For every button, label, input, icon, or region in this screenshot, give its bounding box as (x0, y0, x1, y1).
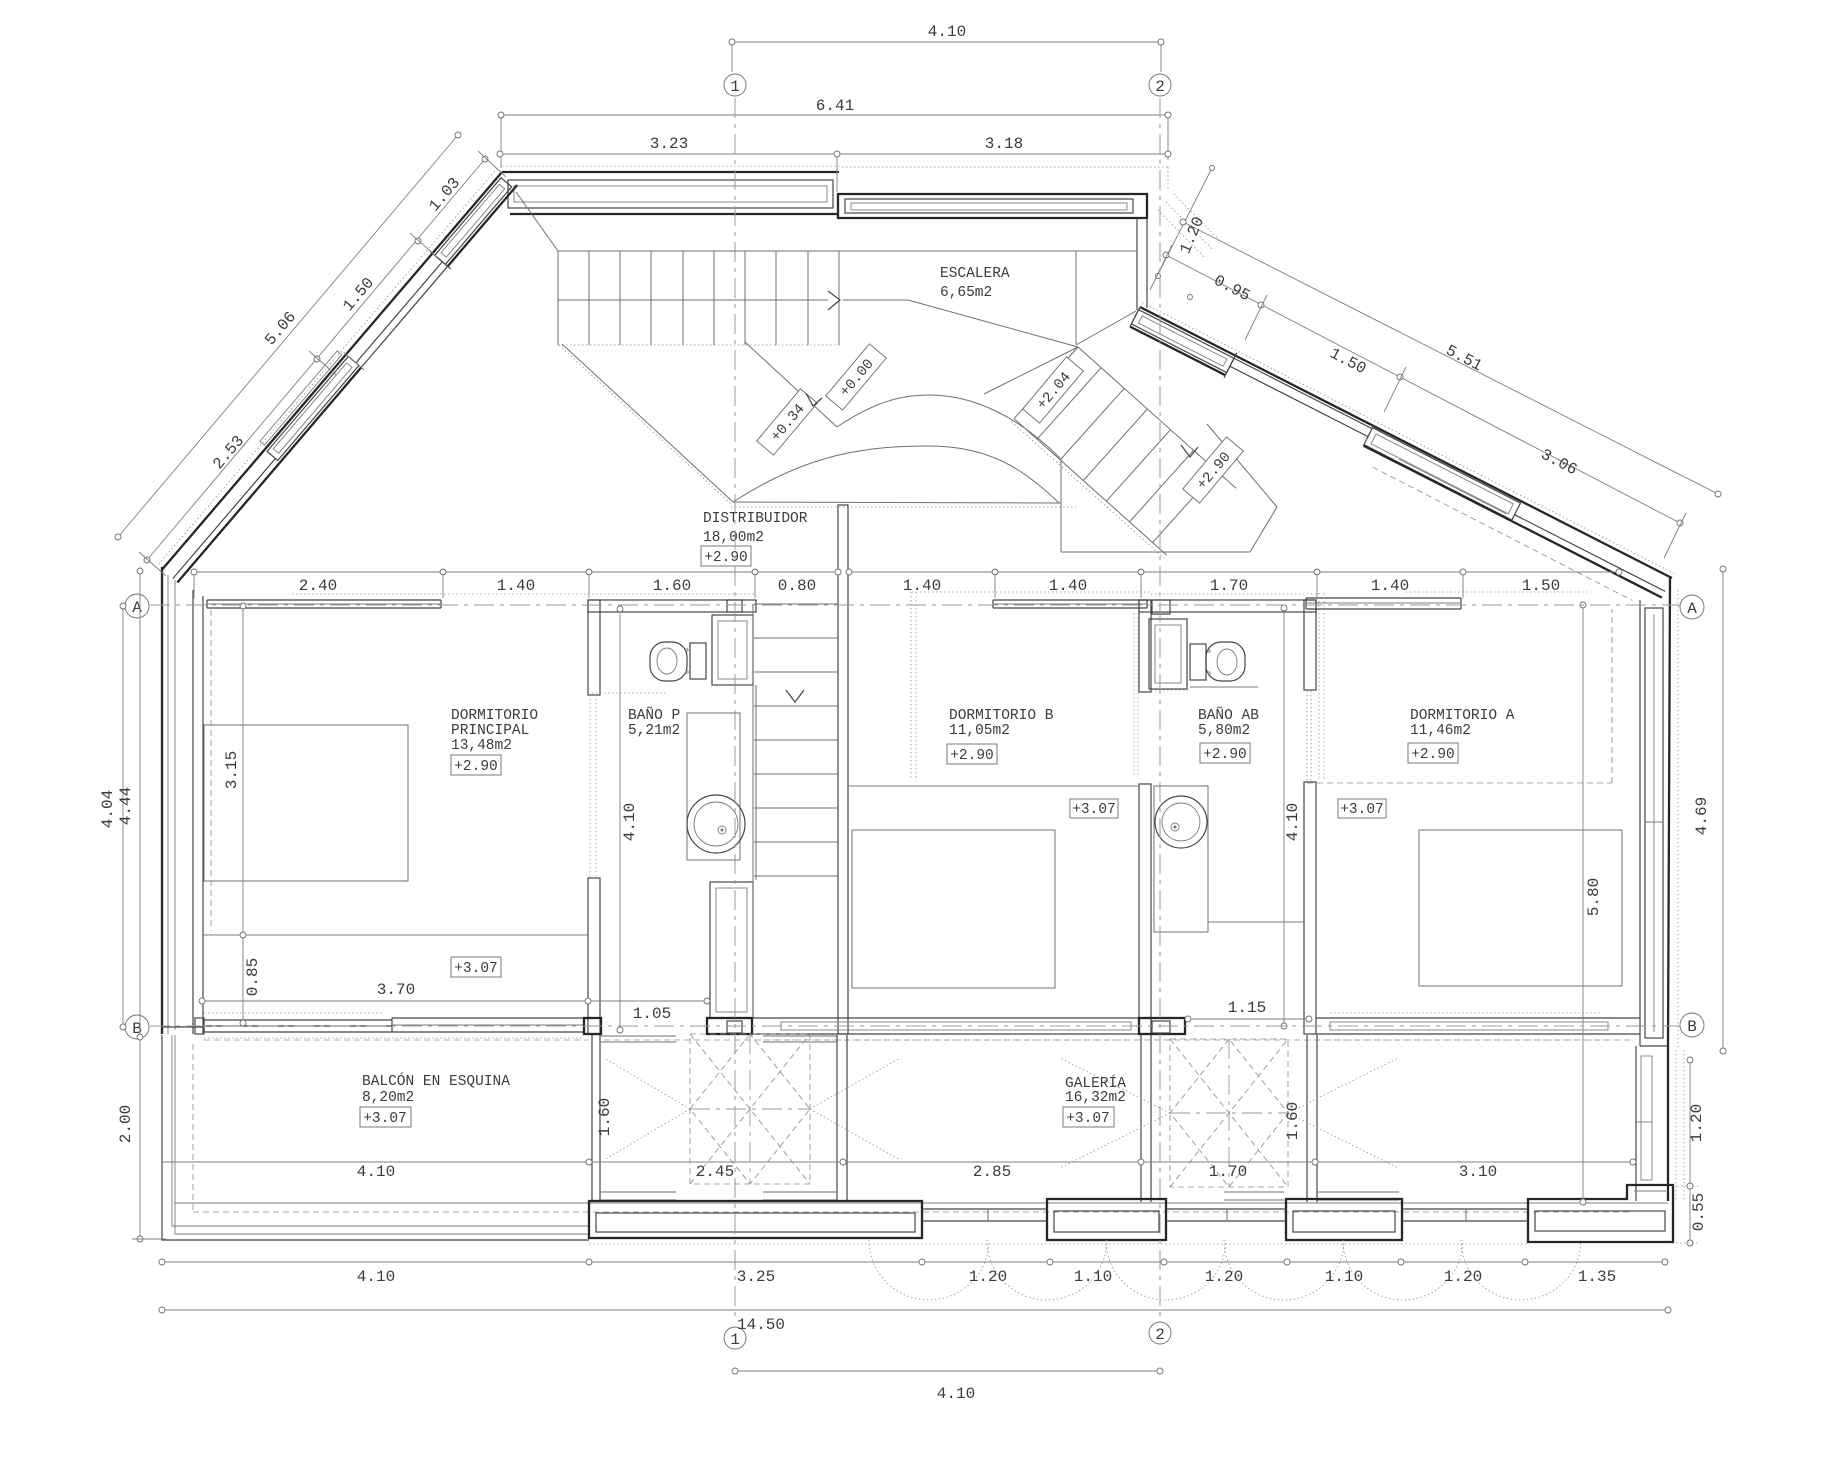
svg-text:+2.90: +2.90 (950, 748, 994, 764)
svg-text:11,05m2: 11,05m2 (949, 723, 1010, 739)
svg-text:8,20m2: 8,20m2 (362, 1090, 414, 1106)
svg-text:6,65m2: 6,65m2 (940, 285, 992, 301)
svg-text:2.40: 2.40 (299, 577, 337, 595)
svg-text:BALCÓN EN ESQUINA: BALCÓN EN ESQUINA (362, 1072, 510, 1090)
svg-text:1.05: 1.05 (633, 1005, 671, 1023)
svg-text:+3.07: +3.07 (1340, 802, 1384, 818)
svg-text:PRINCIPAL: PRINCIPAL (451, 723, 529, 739)
svg-text:0.80: 0.80 (778, 577, 816, 595)
svg-text:4.10: 4.10 (937, 1385, 975, 1403)
svg-text:1.20: 1.20 (969, 1268, 1007, 1286)
svg-text:+2.90: +2.90 (704, 550, 748, 566)
svg-text:2: 2 (1155, 78, 1165, 96)
svg-text:A: A (132, 599, 142, 617)
svg-text:2.85: 2.85 (973, 1163, 1011, 1181)
svg-text:1.35: 1.35 (1578, 1268, 1616, 1286)
svg-text:1.70: 1.70 (1210, 577, 1248, 595)
svg-text:3.25: 3.25 (737, 1268, 775, 1286)
svg-text:2.00: 2.00 (117, 1105, 135, 1143)
svg-text:DORMITORIO: DORMITORIO (451, 708, 538, 724)
svg-text:4.10: 4.10 (1284, 803, 1302, 841)
svg-text:1.60: 1.60 (1284, 1102, 1302, 1140)
svg-text:16,32m2: 16,32m2 (1065, 1090, 1126, 1106)
svg-text:4.10: 4.10 (357, 1268, 395, 1286)
svg-text:3.70: 3.70 (377, 981, 415, 999)
svg-text:A: A (1687, 600, 1697, 618)
svg-text:+2.90: +2.90 (454, 759, 498, 775)
svg-text:1.40: 1.40 (1049, 577, 1087, 595)
svg-text:BAÑO AB: BAÑO AB (1198, 707, 1259, 724)
svg-text:0.85: 0.85 (244, 958, 262, 996)
svg-text:1.10: 1.10 (1325, 1268, 1363, 1286)
svg-text:4.10: 4.10 (928, 23, 966, 41)
svg-text:2.45: 2.45 (696, 1163, 734, 1181)
svg-text:14.50: 14.50 (737, 1316, 785, 1334)
svg-text:B: B (1687, 1018, 1697, 1036)
svg-text:1.10: 1.10 (1074, 1268, 1112, 1286)
svg-text:1.20: 1.20 (1205, 1268, 1243, 1286)
svg-text:+3.07: +3.07 (1072, 802, 1116, 818)
svg-text:1.50: 1.50 (1522, 577, 1560, 595)
svg-text:ESCALERA: ESCALERA (940, 266, 1010, 282)
svg-text:1.20: 1.20 (1688, 1104, 1706, 1142)
svg-text:1.40: 1.40 (1371, 577, 1409, 595)
svg-text:DORMITORIO A: DORMITORIO A (1410, 708, 1515, 724)
svg-text:3.18: 3.18 (985, 135, 1023, 153)
svg-text:DORMITORIO B: DORMITORIO B (949, 708, 1054, 724)
svg-text:+3.07: +3.07 (363, 1111, 407, 1127)
svg-text:1.60: 1.60 (596, 1098, 614, 1136)
svg-text:4.69: 4.69 (1693, 797, 1711, 835)
svg-text:1.15: 1.15 (1228, 999, 1266, 1017)
svg-text:+3.07: +3.07 (454, 961, 498, 977)
svg-text:DISTRIBUIDOR: DISTRIBUIDOR (703, 511, 808, 527)
svg-text:6.41: 6.41 (816, 97, 854, 115)
svg-text:3.15: 3.15 (223, 751, 241, 789)
svg-text:+2.90: +2.90 (1203, 747, 1247, 763)
svg-text:1.40: 1.40 (903, 577, 941, 595)
svg-text:2: 2 (1155, 1326, 1165, 1344)
svg-text:5,80m2: 5,80m2 (1198, 723, 1250, 739)
svg-text:13,48m2: 13,48m2 (451, 738, 512, 754)
svg-text:+2.90: +2.90 (1411, 747, 1455, 763)
svg-text:18,00m2: 18,00m2 (703, 530, 764, 546)
svg-text:3.10: 3.10 (1459, 1163, 1497, 1181)
svg-text:4.44: 4.44 (117, 787, 135, 825)
svg-text:1: 1 (730, 78, 740, 96)
svg-text:5,21m2: 5,21m2 (628, 723, 680, 739)
svg-text:4.04: 4.04 (99, 790, 117, 828)
svg-text:4.10: 4.10 (357, 1163, 395, 1181)
svg-text:1.20: 1.20 (1444, 1268, 1482, 1286)
svg-text:11,46m2: 11,46m2 (1410, 723, 1471, 739)
svg-text:1.40: 1.40 (497, 577, 535, 595)
svg-text:5.80: 5.80 (1585, 878, 1603, 916)
svg-text:BAÑO P: BAÑO P (628, 707, 680, 724)
svg-text:0.55: 0.55 (1690, 1193, 1708, 1231)
svg-text:1.70: 1.70 (1209, 1163, 1247, 1181)
svg-text:3.23: 3.23 (650, 135, 688, 153)
svg-text:+3.07: +3.07 (1066, 1111, 1110, 1127)
svg-text:1.60: 1.60 (653, 577, 691, 595)
svg-text:4.10: 4.10 (621, 803, 639, 841)
